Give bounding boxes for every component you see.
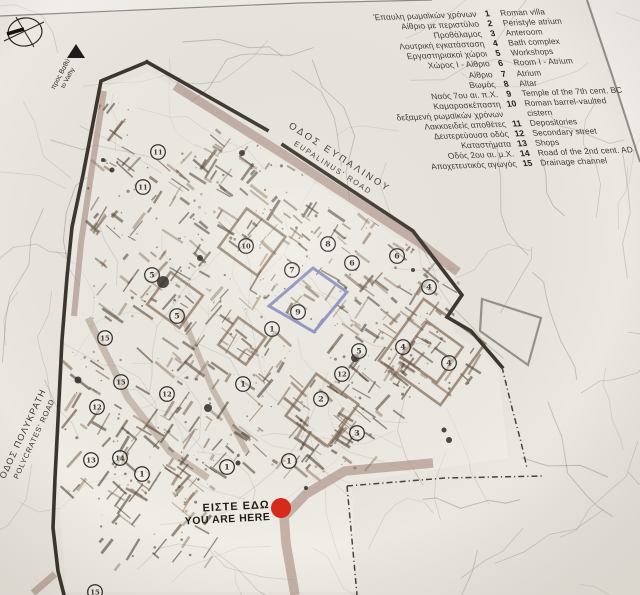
map-marker-4: 4 (442, 356, 457, 371)
svg-text:6: 6 (394, 252, 399, 261)
map-marker-1: 1 (135, 467, 150, 482)
map-marker-6: 6 (345, 256, 360, 271)
map-marker-6: 6 (390, 249, 405, 264)
svg-text:8: 8 (325, 240, 330, 249)
legend-number: 15 (515, 158, 540, 169)
map-marker-15: 15 (98, 331, 113, 346)
svg-text:12: 12 (92, 404, 102, 412)
svg-text:11: 11 (138, 184, 148, 192)
svg-text:15: 15 (116, 379, 126, 387)
svg-text:14: 14 (115, 455, 125, 463)
map-marker-8: 8 (321, 237, 336, 252)
svg-text:1: 1 (286, 457, 291, 466)
map-marker-5: 5 (352, 344, 367, 359)
svg-text:12: 12 (162, 391, 172, 399)
svg-text:7: 7 (289, 266, 294, 275)
map-marker-1: 1 (236, 377, 251, 392)
legend: Έπαυλη ρωμαϊκών χρόνων1Roman villaΑίθριο… (325, 3, 640, 174)
map-marker-12: 12 (160, 387, 175, 402)
svg-text:15: 15 (90, 589, 100, 595)
svg-text:11: 11 (153, 149, 163, 157)
map-marker-5: 5 (145, 268, 160, 283)
map-marker-11: 11 (151, 145, 166, 160)
svg-text:6: 6 (349, 259, 354, 268)
svg-text:12: 12 (337, 371, 347, 379)
map-marker-12: 12 (335, 367, 350, 382)
map-marker-15: 15 (114, 375, 129, 390)
svg-text:9: 9 (295, 308, 300, 317)
svg-text:1: 1 (139, 470, 144, 479)
svg-text:4: 4 (446, 359, 452, 368)
map-marker-3: 3 (350, 426, 365, 441)
map-marker-1: 1 (220, 460, 235, 475)
map-marker-1: 1 (265, 322, 280, 337)
map-marker-14: 14 (113, 451, 128, 466)
svg-text:5: 5 (149, 271, 154, 280)
you-are-here-dot (271, 498, 291, 518)
map-marker-4: 4 (396, 340, 411, 355)
map-marker-7: 7 (285, 263, 300, 278)
svg-text:4: 4 (426, 283, 432, 292)
map-marker-15: 15 (88, 585, 103, 595)
map-marker-11: 11 (136, 180, 151, 195)
svg-text:15: 15 (100, 335, 110, 343)
map-marker-13: 13 (84, 453, 99, 468)
svg-text:1: 1 (224, 463, 229, 472)
svg-text:1: 1 (269, 325, 274, 334)
map-marker-10: 10 (239, 239, 254, 254)
map-marker-9: 9 (291, 305, 306, 320)
map-marker-2: 2 (314, 392, 329, 407)
svg-text:5: 5 (356, 347, 361, 356)
svg-text:4: 4 (400, 343, 406, 352)
svg-text:1: 1 (240, 380, 245, 389)
svg-text:2: 2 (318, 395, 323, 404)
site-map-sign-photo: 1111108667595115444512151121223131411115… (0, 0, 640, 595)
svg-text:3: 3 (354, 429, 359, 438)
map-marker-4: 4 (422, 280, 437, 295)
svg-text:13: 13 (86, 457, 96, 465)
svg-text:10: 10 (241, 243, 251, 251)
map-marker-5: 5 (170, 309, 185, 324)
svg-text:5: 5 (174, 312, 179, 321)
map-marker-12: 12 (90, 400, 105, 415)
map-marker-1: 1 (282, 454, 297, 469)
